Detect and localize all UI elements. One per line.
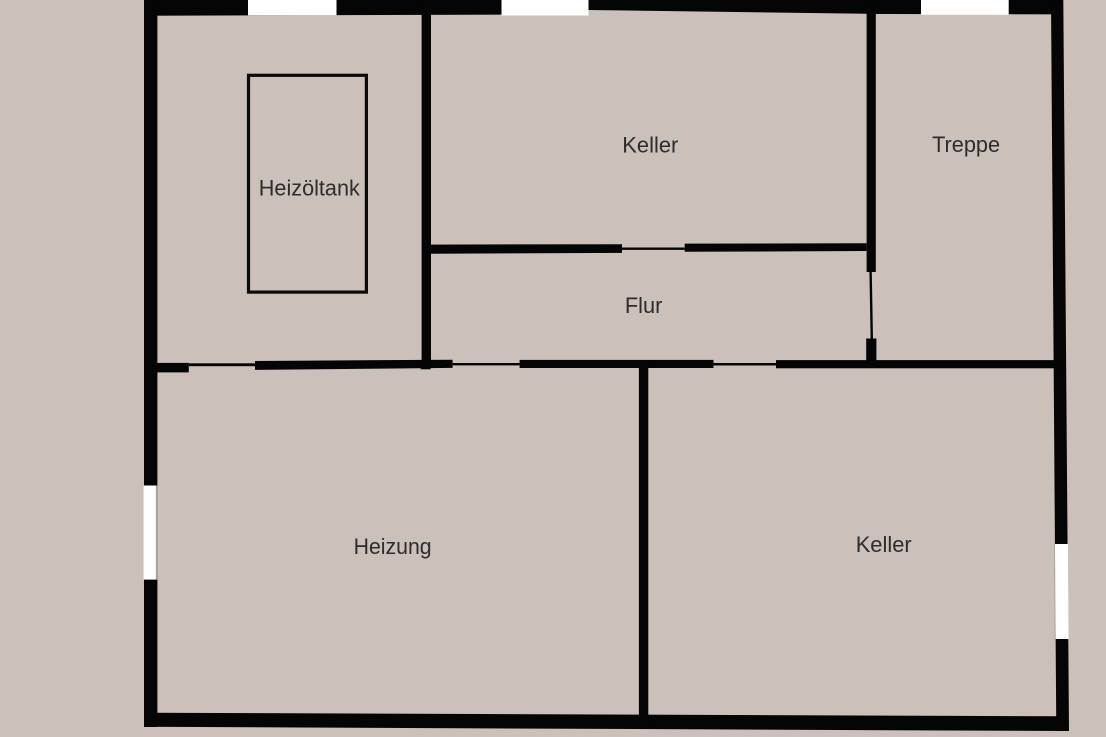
svg-text:Flur: Flur bbox=[625, 293, 663, 318]
svg-text:Heizung: Heizung bbox=[354, 534, 432, 559]
svg-text:Treppe: Treppe bbox=[932, 132, 1000, 157]
svg-text:Keller: Keller bbox=[622, 132, 678, 157]
svg-text:Heizöltank: Heizöltank bbox=[259, 176, 361, 201]
svg-text:Keller: Keller bbox=[856, 532, 912, 557]
